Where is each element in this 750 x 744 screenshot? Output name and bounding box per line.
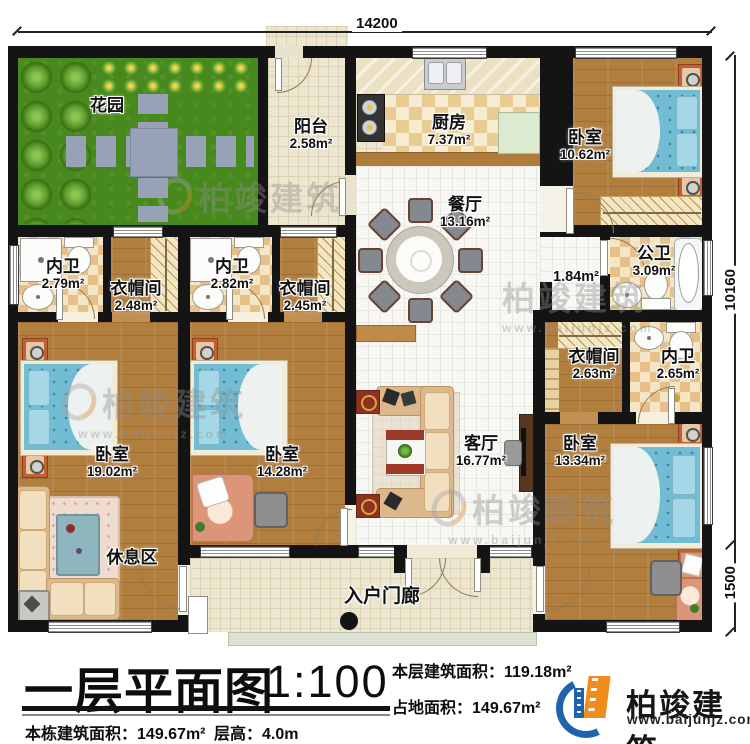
side-table-ring	[361, 395, 377, 411]
building-area-label: 本栋建筑面积：	[25, 726, 137, 743]
title-underline-thin	[22, 714, 390, 716]
window-cloak-1	[113, 226, 163, 238]
room-label-public-bath: 公卫3.09m²	[633, 245, 676, 278]
door-leaf	[536, 566, 544, 612]
desk-chair	[254, 492, 288, 528]
dining-sideboard	[356, 325, 416, 342]
pillow	[198, 370, 220, 406]
wall-center-left-column	[345, 56, 356, 558]
pillow	[198, 409, 220, 445]
wall-garden-balcony	[258, 56, 268, 235]
stove-burner	[362, 100, 377, 115]
sink	[612, 282, 642, 308]
sofa-cushion	[50, 582, 84, 616]
porch-column	[340, 612, 358, 630]
side-table-ring	[361, 499, 377, 515]
room-label-hall: 1.84m²	[553, 270, 599, 285]
window-kitchen	[412, 47, 487, 59]
dining-chair	[408, 298, 433, 323]
door-leaf	[179, 566, 187, 612]
table-flower	[66, 524, 75, 533]
height-label: 层高：	[214, 726, 262, 743]
sofa-cushion	[424, 392, 450, 430]
cabinet-chair	[504, 440, 522, 466]
wardrobe-top-right	[600, 196, 704, 228]
sofa-cushion	[84, 582, 116, 616]
pillow	[676, 96, 698, 130]
stove-burner	[362, 120, 377, 135]
height-value: 4.0m	[262, 726, 298, 743]
pillow	[28, 409, 50, 445]
dimension-tick	[725, 627, 735, 637]
dimension-right-porch: 1500	[722, 563, 739, 602]
dimension-right-height: 10160	[722, 266, 739, 314]
door-gap	[345, 175, 356, 215]
wall-outer-right	[702, 46, 712, 632]
window-bedroom-left	[48, 621, 152, 633]
building-area-value: 149.67m²	[137, 726, 206, 743]
pillow	[672, 498, 696, 538]
room-label-bedroom-mid: 卧室14.28m²	[257, 446, 307, 479]
sofa-cushion	[424, 432, 450, 470]
room-label-bedroom-bottom-right: 卧室13.34m²	[555, 435, 605, 468]
porch-pillar	[188, 596, 208, 634]
dining-chair	[358, 248, 383, 273]
company-logo-url: www.baijunjz.com	[627, 712, 750, 727]
door-leaf	[340, 508, 348, 546]
cloak-3-rack	[558, 322, 622, 349]
door-leaf	[668, 388, 675, 424]
room-label-living: 客厅16.77m²	[456, 435, 506, 468]
opening-cloak-3	[560, 412, 598, 424]
sofa-cushion	[424, 472, 450, 512]
door-leaf	[600, 240, 608, 276]
window-cloak-2	[280, 226, 337, 238]
room-label-garden: 花园	[90, 97, 124, 115]
room-label-cloak-1: 衣帽间2.48m²	[111, 280, 162, 313]
room-label-porch: 入户门廊	[344, 588, 420, 606]
sofa-cushion	[19, 530, 47, 570]
pillow	[28, 370, 50, 406]
porch-step	[228, 632, 537, 646]
door-leaf	[339, 178, 346, 216]
bathtub-inner	[678, 243, 699, 303]
floor-area-row: 本层建筑面积：119.18m²	[392, 658, 572, 682]
pillow	[672, 455, 696, 495]
floor-plan-sheet: 花园 阳台2.58m² 厨房7.37m² 卧室10.62m² 餐厅13.16m²…	[0, 0, 750, 744]
window-bath-1	[9, 245, 19, 305]
garden-path-center	[130, 128, 178, 177]
room-label-bedroom-top-right: 卧室10.62m²	[560, 129, 610, 162]
sink-basin	[428, 62, 444, 84]
company-logo-icon	[556, 672, 618, 732]
sink	[634, 326, 664, 350]
desk-chair	[650, 560, 682, 596]
room-label-bath-1: 内卫2.79m²	[42, 258, 85, 291]
dining-table-center	[410, 250, 432, 272]
land-area-row: 占地面积：149.67m²	[392, 694, 541, 718]
cloak-3-shelf	[545, 348, 559, 412]
door-leaf	[474, 558, 481, 592]
building-area-row: 本栋建筑面积：149.67m²	[25, 720, 206, 744]
land-area-label: 占地面积：	[392, 700, 472, 717]
pillow	[676, 133, 698, 167]
balcony-exterior-landing	[266, 26, 348, 48]
table-plant	[398, 444, 412, 458]
toilet-tank	[641, 298, 671, 310]
table-flower	[76, 548, 82, 554]
door-leaf	[275, 58, 282, 91]
window-bedroom-bottom-right	[703, 447, 713, 525]
window-bedroom-br-bottom	[606, 621, 680, 633]
land-area-value: 149.67m²	[472, 700, 541, 717]
desk-plant	[195, 522, 205, 532]
plan-scale: 1:100	[266, 656, 389, 708]
window-public-bath	[703, 240, 713, 296]
opening-cloak-1	[112, 312, 150, 322]
room-label-bath-2: 内卫2.82m²	[211, 258, 254, 291]
window-bedroom-top-right	[575, 47, 677, 59]
room-label-kitchen: 厨房7.37m²	[428, 114, 471, 147]
logo-building-blue	[574, 688, 584, 718]
door-gap	[275, 46, 303, 58]
fridge	[498, 112, 540, 154]
title-underline-thick	[22, 706, 390, 711]
room-label-bath-3: 内卫2.65m²	[657, 348, 700, 381]
bed-left-blanket	[68, 364, 112, 450]
desk-plant	[690, 604, 699, 613]
dimension-line-right	[734, 55, 736, 632]
floor-area-label: 本层建筑面积：	[392, 664, 504, 681]
bed-mid-blanket	[238, 364, 282, 450]
entrance-door-gap	[398, 545, 486, 558]
room-label-cloak-3: 衣帽间2.63m²	[569, 348, 620, 381]
coffee-table-stripe	[386, 464, 424, 474]
rest-coffee-table	[56, 514, 100, 576]
room-label-balcony: 阳台2.58m²	[290, 118, 333, 151]
dining-chair	[458, 248, 483, 273]
dimension-top-width: 14200	[352, 15, 402, 32]
door-leaf	[566, 188, 574, 234]
room-label-cloak-2: 衣帽间2.45m²	[280, 280, 331, 313]
dining-chair	[408, 198, 433, 223]
garden-plants	[98, 59, 250, 95]
room-label-bedroom-left: 卧室19.02m²	[87, 446, 137, 479]
window-entry-right	[486, 546, 532, 558]
sink-basin	[446, 62, 462, 84]
plan-title: 一层平面图	[24, 652, 274, 723]
opening-cloak-2	[284, 312, 322, 322]
wall-publicbath-bottom	[540, 310, 712, 322]
room-label-dining: 餐厅13.16m²	[440, 196, 490, 229]
room-label-rest-area: 休息区	[107, 549, 158, 567]
wall-outer-left	[8, 46, 18, 632]
window-bedroom-mid-porch	[200, 546, 290, 558]
coffee-table-stripe	[386, 430, 424, 440]
sofa-cushion	[19, 490, 47, 530]
wall-cloak3-bath3	[622, 322, 630, 412]
storey-height-row: 层高：4.0m	[214, 720, 298, 744]
